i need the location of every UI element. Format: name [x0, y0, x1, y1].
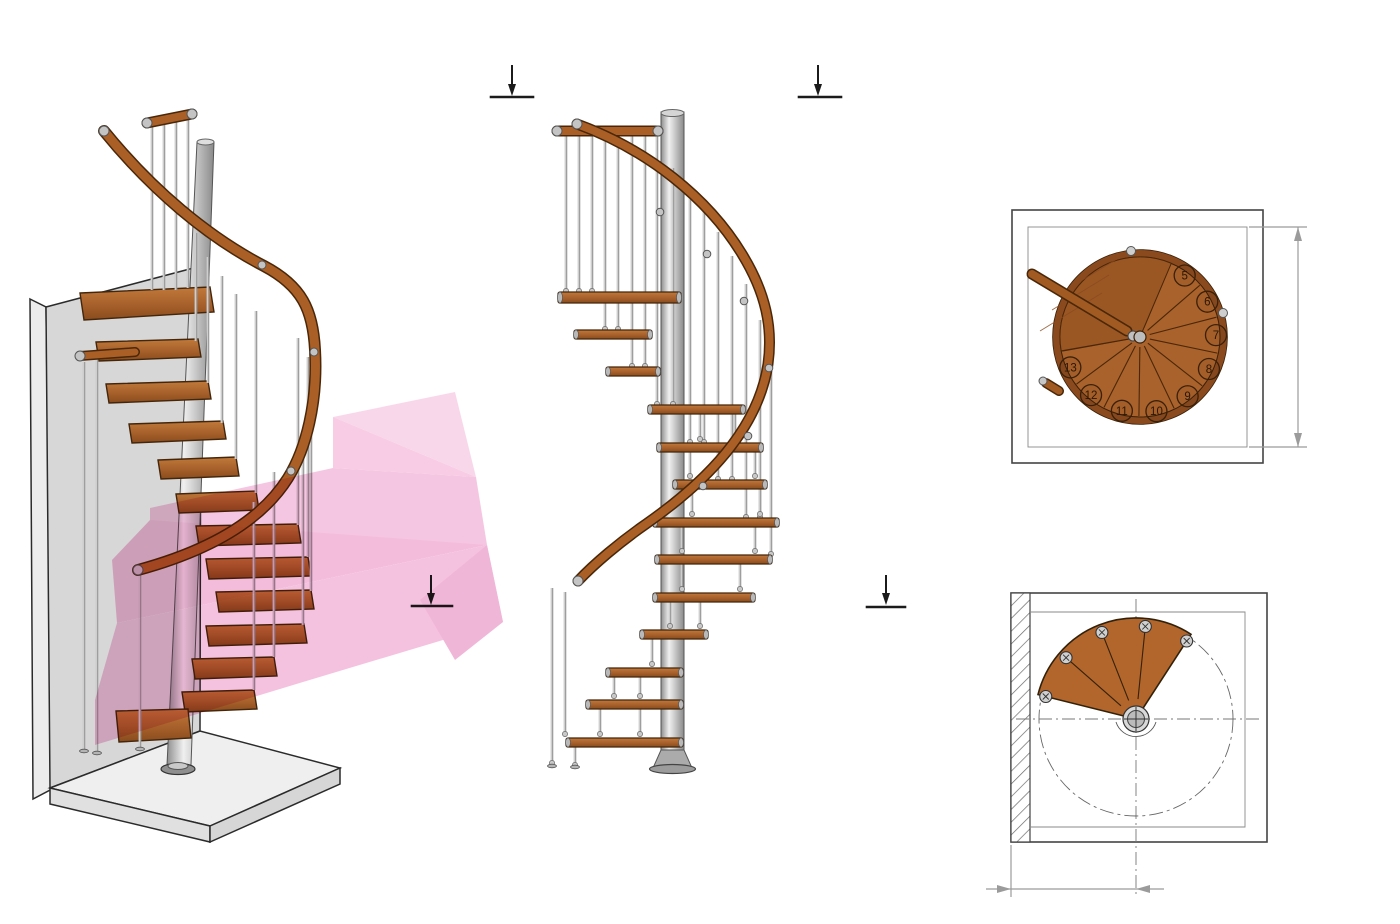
- cc-step-number: 8: [1206, 364, 1212, 376]
- tread-end-cap: [679, 738, 684, 747]
- handrail-connector-elevation: [765, 364, 773, 372]
- cc-dim-arrow-top: [1294, 227, 1302, 241]
- tread-end-cap: [775, 518, 780, 527]
- side-rail-3d: [80, 352, 135, 356]
- tread-elevation: [640, 630, 708, 639]
- view-3d: [30, 109, 340, 842]
- cc-step-number: 11: [1116, 406, 1128, 418]
- tread-3d: [182, 690, 257, 712]
- tread-end-cap: [606, 367, 611, 376]
- column-elev-top-cap: [661, 110, 684, 117]
- tread-3d: [206, 557, 311, 579]
- tread-3d: [192, 657, 277, 679]
- view-elevation: [548, 110, 780, 774]
- tread-3d: [129, 421, 226, 443]
- tread-elevation: [653, 518, 779, 527]
- dd-wall-hatch: [1011, 593, 1030, 842]
- tread-end-cap: [656, 367, 661, 376]
- baluster-joint: [679, 548, 684, 553]
- tread-elevation: [653, 593, 755, 602]
- tread-elevation: [606, 668, 683, 677]
- baluster-joint: [757, 511, 762, 516]
- tread-end-cap: [673, 480, 678, 489]
- tread-end-cap: [679, 700, 684, 709]
- column-elev-base-plate: [650, 765, 696, 774]
- baluster-joint: [737, 586, 742, 591]
- baluster-joint: [562, 731, 567, 736]
- cc-rim-clip: [1127, 247, 1136, 256]
- baluster-joint: [697, 623, 702, 628]
- tread-3d: [176, 491, 259, 513]
- baluster-joint: [679, 586, 684, 591]
- cc-step-number: 9: [1184, 391, 1190, 403]
- handrail-cap-3d: [187, 109, 197, 119]
- tread-end-cap: [655, 555, 660, 564]
- tread-end-cap: [751, 593, 756, 602]
- baluster-joint: [752, 548, 757, 553]
- tread-3d: [158, 457, 239, 479]
- baluster-foot-3d: [93, 751, 102, 755]
- cc-step-number: 7: [1213, 330, 1219, 342]
- baluster-joint: [597, 731, 602, 736]
- handrail-cap-3d: [133, 565, 143, 575]
- column-base-hub: [168, 763, 188, 770]
- tread-end-cap: [640, 630, 645, 639]
- handrail-cap-3d: [99, 126, 109, 136]
- tread-elevation: [574, 330, 652, 339]
- handrail-cap-elevation: [552, 126, 562, 136]
- dd-dim-arrow-left: [997, 885, 1011, 893]
- handrail-connector-elevation: [740, 297, 748, 305]
- baluster-foot-elevation: [548, 764, 557, 768]
- marker-c-left: [491, 66, 533, 97]
- baluster-joint: [697, 436, 702, 441]
- tread-end-cap: [648, 330, 653, 339]
- column-top-cap: [197, 139, 214, 145]
- dd-tread-fan: [1038, 618, 1191, 719]
- tread-elevation: [657, 443, 763, 452]
- handrail-connector-elevation: [744, 432, 752, 440]
- handrail-cap-3d: [142, 118, 152, 128]
- tread-end-cap: [574, 330, 579, 339]
- handrail-cap-elevation: [573, 576, 583, 586]
- tread-elevation: [566, 738, 683, 747]
- staircase-drawing: 5678910111213: [0, 0, 1400, 924]
- cc-rim-clip: [1219, 309, 1228, 318]
- handrail-connector-elevation: [703, 250, 711, 258]
- dd-dim-arrow-right: [1136, 885, 1150, 893]
- baluster-foot-3d: [80, 749, 89, 753]
- marker-d-right: [867, 576, 905, 607]
- tread-end-cap: [677, 292, 682, 303]
- view-cc-plan: 5678910111213: [1012, 210, 1307, 463]
- tread-end-cap: [558, 292, 563, 303]
- handrail-connector-3d: [287, 467, 295, 475]
- handrail-connector-3d: [258, 261, 266, 269]
- tread-3d: [206, 624, 307, 646]
- cc-step-number: 6: [1204, 297, 1210, 309]
- tread-end-cap: [586, 700, 591, 709]
- baluster-joint: [689, 511, 694, 516]
- marker-d-left: [412, 576, 452, 606]
- tread-elevation: [655, 555, 772, 564]
- tread-elevation: [648, 405, 745, 414]
- handrail-cap-elevation: [572, 119, 582, 129]
- handrail-connector-3d: [310, 348, 318, 356]
- baluster-joint: [667, 623, 672, 628]
- tread-end-cap: [566, 738, 571, 747]
- baluster-foot-elevation: [571, 765, 580, 769]
- tread-end-cap: [704, 630, 709, 639]
- baluster-joint: [752, 473, 757, 478]
- cc-step-number: 12: [1085, 390, 1098, 402]
- landing-rail-3d: [147, 114, 192, 123]
- view-dd-plan: [986, 593, 1267, 897]
- baluster-foot-3d: [136, 747, 145, 751]
- handrail-connector-elevation: [699, 482, 707, 490]
- handrail-connector-elevation: [656, 208, 664, 216]
- cc-step-number: 13: [1064, 362, 1077, 374]
- baluster-joint: [637, 731, 642, 736]
- tread-end-cap: [679, 668, 684, 677]
- baluster-joint: [611, 693, 616, 698]
- tread-3d: [116, 709, 191, 742]
- cc-rail-stub-cap: [1039, 377, 1047, 385]
- drawing-sheet: 5678910111213: [0, 0, 1400, 924]
- cc-step-number: 10: [1150, 406, 1163, 418]
- handrail-cap-elevation: [653, 126, 663, 136]
- cc-center-hub: [1134, 331, 1146, 343]
- tread-end-cap: [741, 405, 746, 414]
- baluster-joint: [637, 693, 642, 698]
- tread-end-cap: [606, 668, 611, 677]
- cc-dim-arrow-bottom: [1294, 433, 1302, 447]
- handrail-cap-3d: [75, 351, 85, 361]
- tread-elevation: [558, 292, 681, 303]
- cc-step-number: 5: [1181, 271, 1187, 283]
- baluster-joint: [687, 473, 692, 478]
- tread-end-cap: [648, 405, 653, 414]
- tread-end-cap: [657, 443, 662, 452]
- baluster-joint: [649, 661, 654, 666]
- tread-3d: [106, 381, 211, 403]
- tread-elevation: [606, 367, 660, 376]
- tread-end-cap: [759, 443, 764, 452]
- tread-end-cap: [768, 555, 773, 564]
- tread-3d: [216, 590, 314, 612]
- tread-elevation: [586, 700, 683, 709]
- marker-c-right: [799, 66, 841, 97]
- tread-end-cap: [653, 593, 658, 602]
- tread-end-cap: [763, 480, 768, 489]
